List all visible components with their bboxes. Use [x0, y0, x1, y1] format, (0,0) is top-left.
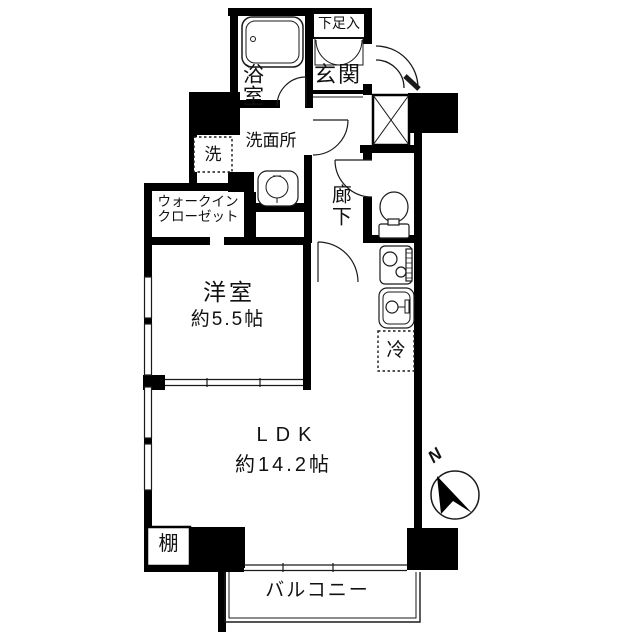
washroom-label: 洗面所 — [234, 131, 308, 150]
walk-in-closet-label-line2: クローゼット — [144, 209, 252, 224]
shoe-cabinet-label: 下足入 — [313, 16, 365, 32]
fridge-label: 冷 — [378, 340, 414, 361]
shelf-label: 棚 — [147, 533, 190, 555]
compass-icon — [431, 471, 479, 519]
western-room-size-label: 約5.5帖 — [167, 309, 289, 330]
ldk-size-label: 約14.2帖 — [211, 454, 356, 476]
floor-plan: 下足入 玄関 浴室 洗面所 洗 ウォークイン クローゼット 廊下 洋室 約5.5… — [0, 0, 640, 640]
balcony-window-icon — [244, 563, 407, 572]
bathtub-icon — [242, 17, 303, 67]
sliding-partition-icon — [165, 378, 303, 387]
entrance-closet-doors-icon — [315, 38, 363, 65]
balcony-label: バルコニー — [245, 580, 390, 601]
ldk-label: LDK — [248, 424, 328, 446]
bathroom-label: 浴室 — [240, 63, 264, 107]
entry-door-icon — [376, 46, 419, 89]
washroom-door-icon — [313, 120, 348, 155]
floor-plan-drawing — [0, 0, 640, 640]
entrance-label: 玄関 — [312, 63, 364, 88]
pipe-shaft-icon — [373, 95, 409, 145]
washbasin-icon — [258, 171, 298, 206]
toilet-icon — [379, 192, 409, 238]
walk-in-closet-label: ウォークイン クローゼット — [144, 194, 252, 224]
walk-in-closet-label-line1: ウォークイン — [144, 194, 252, 209]
hallway-label: 廊下 — [328, 184, 350, 228]
stove-icon — [380, 246, 412, 284]
western-room-label: 洋室 — [174, 280, 284, 306]
kitchen-sink-icon — [379, 288, 414, 328]
bathroom-door-icon — [277, 77, 306, 106]
washer-label: 洗 — [194, 145, 232, 164]
ldk-door-icon — [318, 242, 358, 282]
